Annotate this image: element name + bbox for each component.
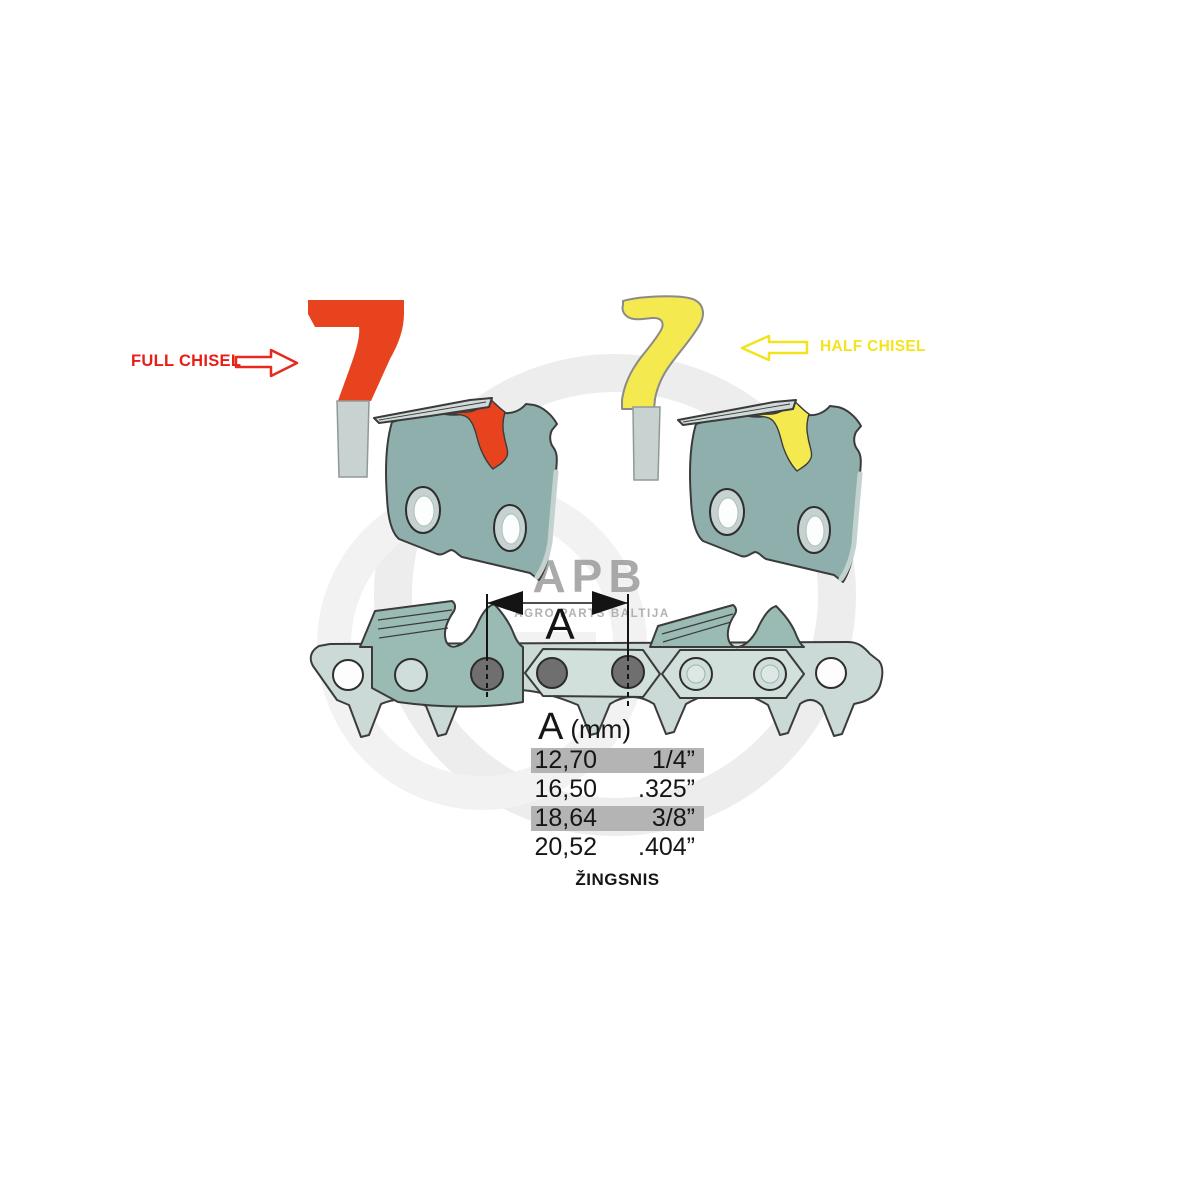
half-chisel-arrow-icon: [742, 336, 807, 360]
full-chisel-arrow-icon: [236, 350, 297, 376]
table-row: 12,70 1/4”: [531, 748, 704, 773]
chainsaw-chain-pitch-diagram: APB AGRO PARTS BALTIJA: [0, 0, 1188, 1188]
chain-hole: [333, 660, 363, 690]
pitch-inch-value: 3/8”: [597, 804, 704, 833]
pitch-mm-value: 18,64: [531, 804, 597, 833]
pitch-dimension-letter: A: [532, 600, 588, 650]
full-chisel-cutter-profile: [308, 300, 404, 401]
full-chisel-label: FULL CHISEL: [131, 352, 241, 371]
table-row: 18,64 3/8”: [531, 806, 704, 831]
chain-rivet: [537, 658, 567, 688]
pitch-table-header-unit: (mm): [570, 714, 631, 745]
pitch-table: A (mm) 12,70 1/4” 16,50 .325” 18,64 3/8”…: [531, 705, 704, 890]
pitch-inch-value: .404”: [597, 833, 704, 862]
chain-hole: [395, 659, 427, 691]
pitch-inch-value: 1/4”: [597, 746, 704, 775]
pitch-mm-value: 16,50: [531, 775, 597, 804]
table-row: 20,52 .404”: [531, 835, 704, 860]
full-chisel-side-link: [374, 398, 557, 580]
half-chisel-label: HALF CHISEL: [820, 338, 926, 356]
chain-diagram: [0, 0, 1188, 1188]
pitch-table-header-letter: A: [538, 709, 563, 745]
chain-cutter-right: [650, 605, 804, 647]
half-chisel-cutter-profile: [622, 296, 703, 409]
pitch-inch-value: .325”: [597, 775, 704, 804]
pitch-table-header: A (mm): [531, 705, 704, 745]
pitch-caption: ŽINGSNIS: [531, 870, 704, 890]
full-chisel-profile-stub: [337, 401, 369, 477]
half-chisel-side-link: [678, 400, 861, 582]
chain-cutter-left: [360, 601, 523, 707]
pitch-mm-value: 20,52: [531, 833, 597, 862]
table-row: 16,50 .325”: [531, 777, 704, 802]
chain-hole: [816, 658, 846, 688]
pitch-mm-value: 12,70: [531, 746, 597, 775]
half-chisel-profile-stub: [633, 407, 660, 480]
